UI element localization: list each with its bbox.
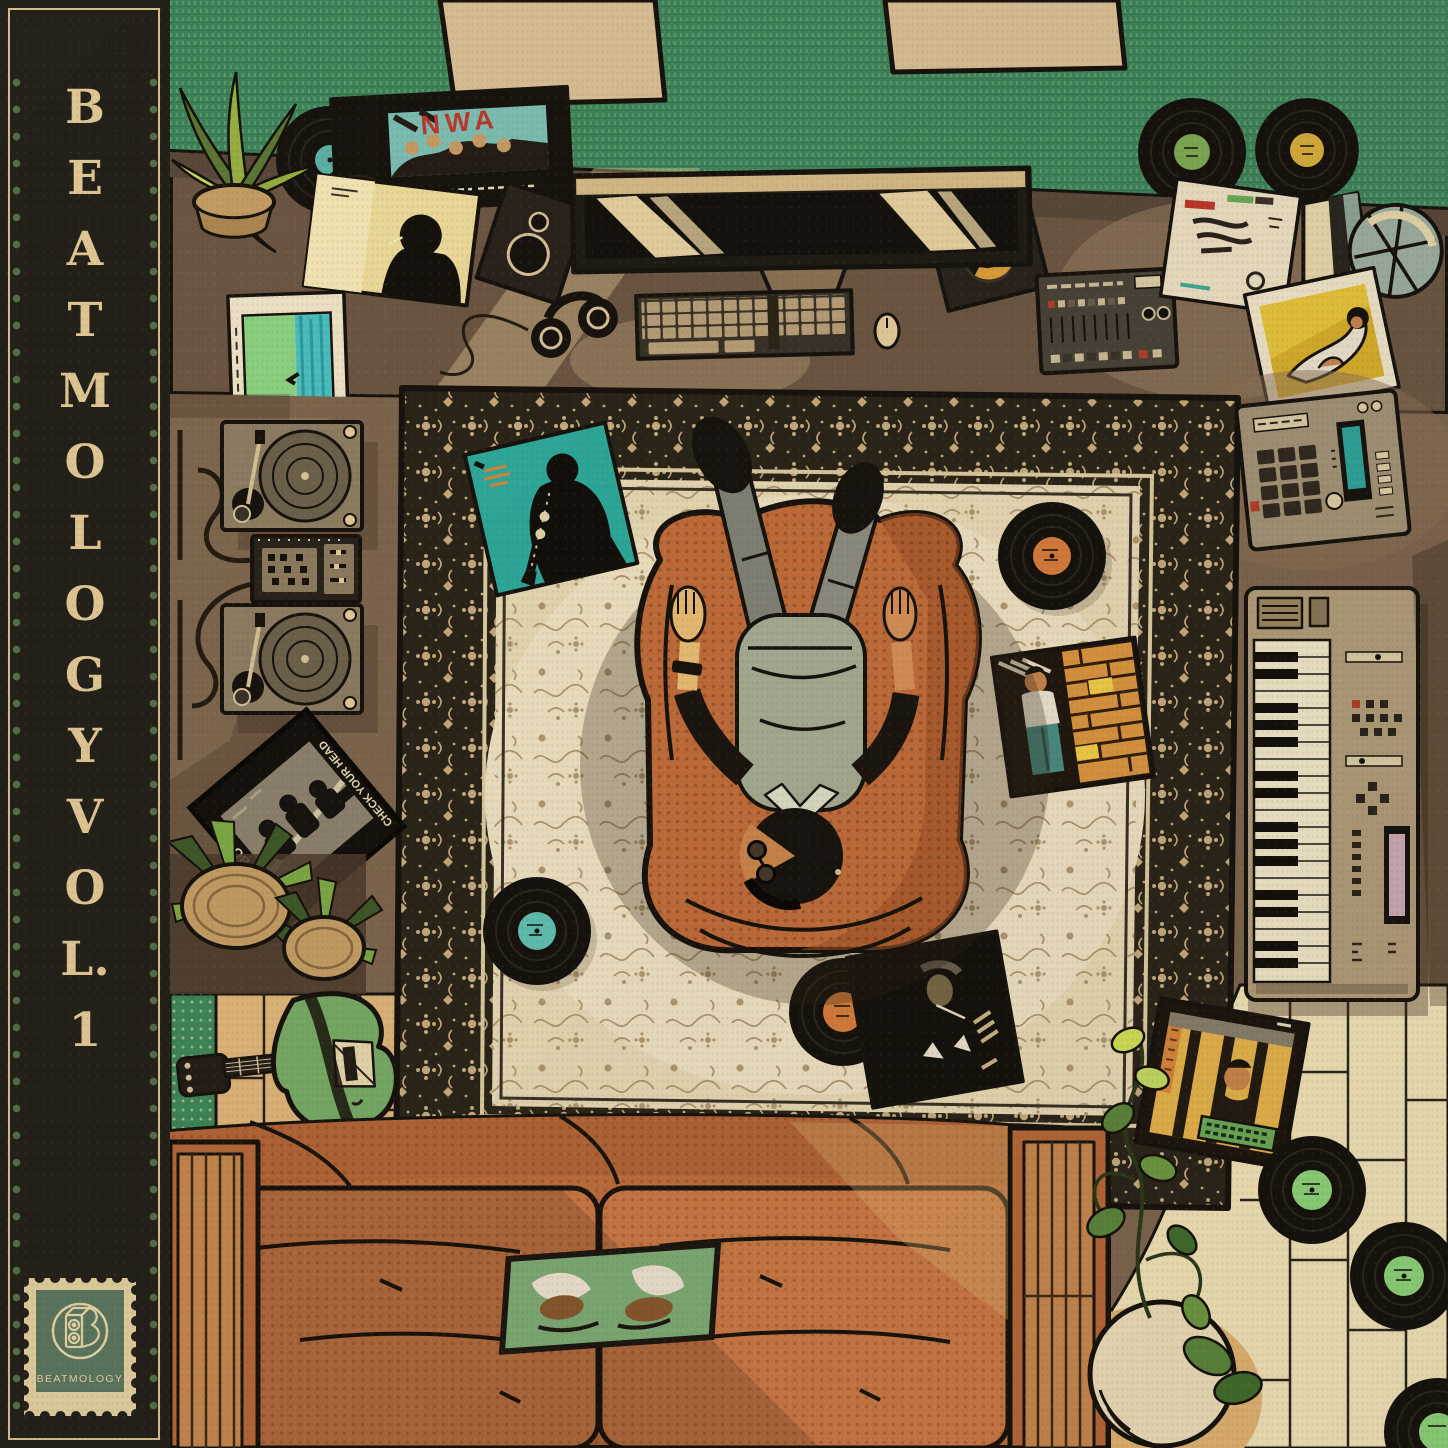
glasses-right-lens	[758, 866, 775, 883]
couch	[170, 1116, 1108, 1448]
drum-machine	[1036, 269, 1177, 374]
left-hand	[671, 587, 705, 641]
album-cover-clarinet-jazz	[465, 423, 638, 596]
computer-mouse	[875, 314, 899, 348]
spine-panel: BEATMOLOGY VOL.1 BEATMOLOGY	[0, 0, 170, 1448]
couch-arm-left	[170, 1142, 258, 1448]
dj-mixer	[252, 536, 360, 602]
album-cover-artwork: NWA	[0, 0, 1448, 1448]
spine-dots-right	[149, 78, 158, 1426]
torso-shirt	[737, 615, 865, 810]
spine-title: BEATMOLOGY VOL.1	[57, 72, 113, 1066]
sampler-mpc	[1236, 390, 1410, 550]
glasses-left-lens	[749, 842, 766, 859]
album-on-couch	[502, 1244, 718, 1351]
acoustic-panel-right	[885, 0, 1125, 72]
turntable-top	[222, 422, 378, 550]
synth-screen	[1389, 834, 1405, 916]
computer-keyboard	[636, 290, 853, 359]
right-forearm	[901, 642, 905, 690]
spine-dots-left	[12, 78, 21, 1426]
stamp-label: BEATMOLOGY	[37, 1373, 124, 1385]
synthesizer-keyboard	[1246, 588, 1428, 1016]
studio-room-illustration: NWA	[0, 0, 1448, 1448]
album-cover-silhouette	[304, 174, 480, 305]
earring	[835, 869, 841, 875]
beatmology-stamp: BEATMOLOGY	[20, 1274, 140, 1420]
